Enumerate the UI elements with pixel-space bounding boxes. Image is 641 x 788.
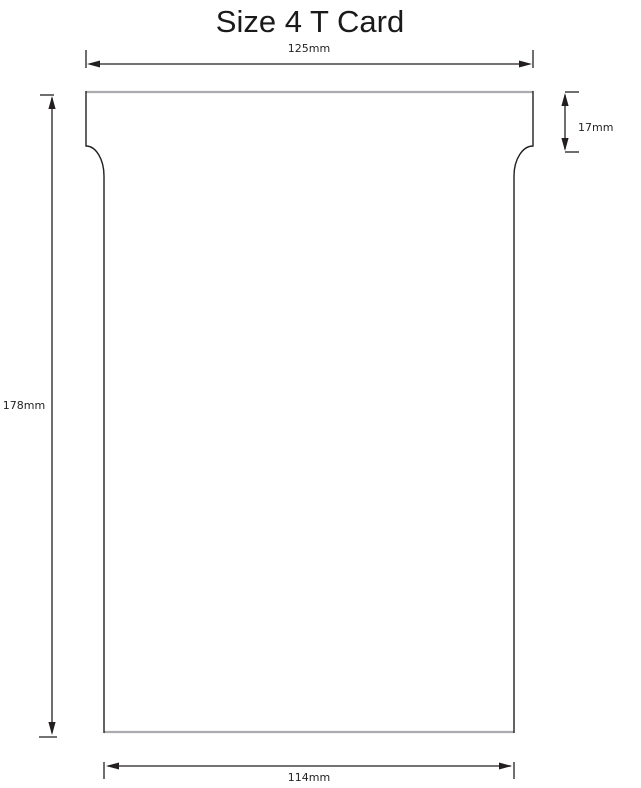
dim-top-arrowhead-left: [87, 61, 100, 68]
dim-tab-arrowhead-down: [561, 138, 568, 151]
card-outline: [86, 91, 533, 733]
dim-top-arrowhead-right: [519, 61, 532, 68]
dim-bottom-arrowhead-right: [499, 763, 512, 770]
dim-bottom-arrowhead-left: [106, 763, 119, 770]
dim-tab-arrowhead-up: [561, 93, 568, 106]
label-top-width: 125mm: [0, 42, 618, 55]
dim-height-arrowhead-down: [48, 722, 55, 735]
card-right-edge: [514, 91, 533, 733]
dimension-total-height: [39, 95, 57, 737]
label-bottom-width: 114mm: [0, 771, 618, 784]
label-total-height: 178mm: [2, 399, 46, 412]
dimension-tab-height: [561, 92, 579, 152]
label-tab-height: 17mm: [578, 121, 613, 134]
dim-height-arrowhead-up: [48, 96, 55, 109]
tcard-dimension-diagram: Size 4 T Card: [0, 0, 641, 788]
card-left-edge: [86, 91, 104, 733]
diagram-canvas: [0, 0, 641, 788]
